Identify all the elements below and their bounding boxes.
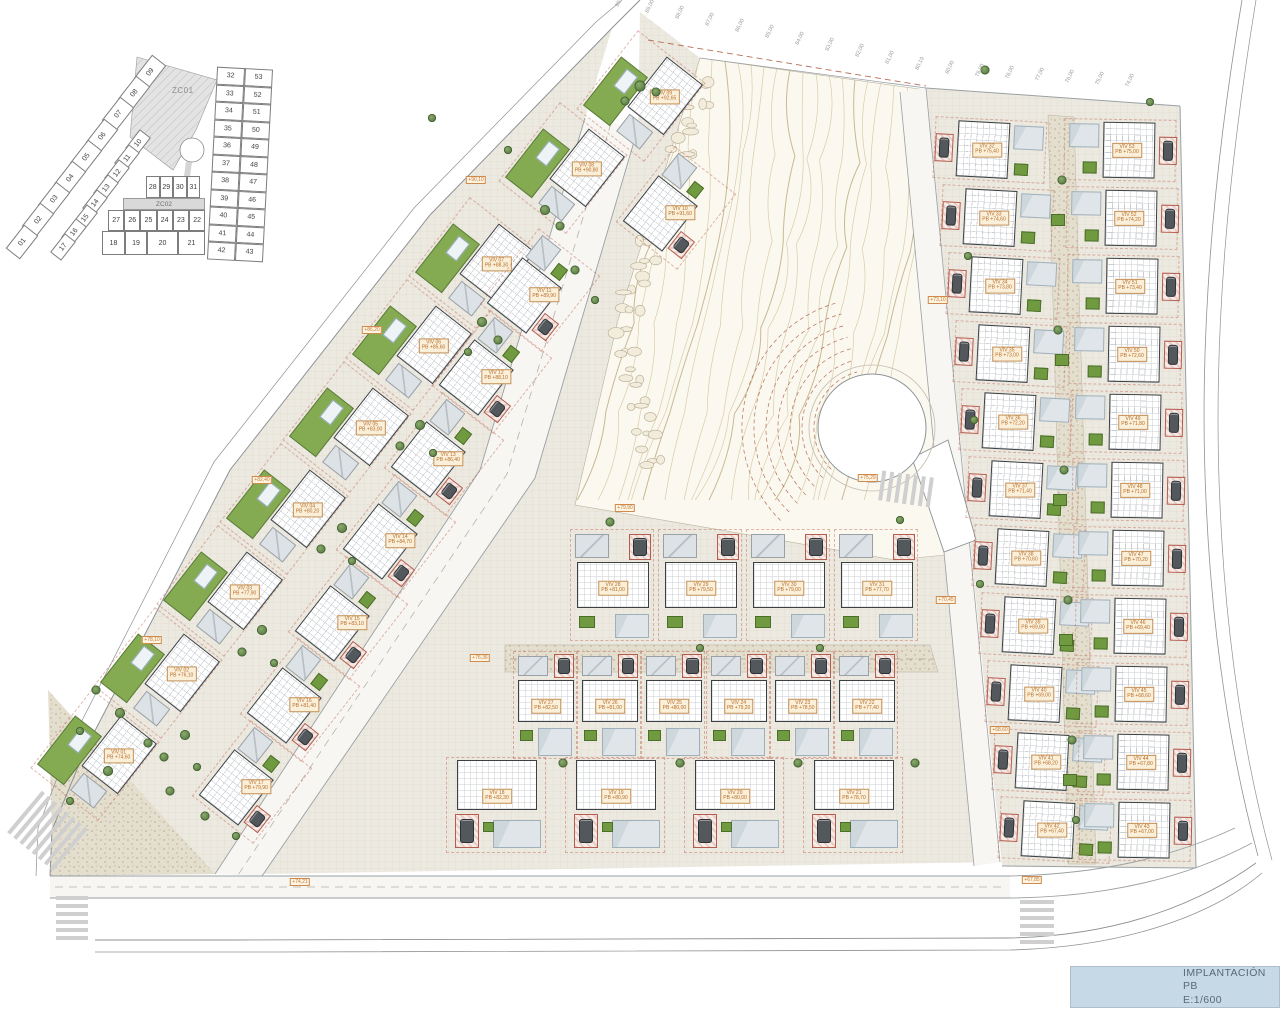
villa-planter [1096, 773, 1110, 785]
villa-pool [493, 820, 541, 848]
villa-planter [1014, 163, 1029, 176]
villa-label: VIV 24PB +79,20 [724, 699, 754, 714]
tree-icon [1146, 98, 1154, 106]
villa-planter [713, 730, 726, 741]
key-plan-plot-cell: 48 [240, 156, 269, 175]
villa-floor-level: PB +71,00 [1123, 490, 1147, 496]
tree-icon [1072, 816, 1080, 824]
villa-label: VIV 03PB +77,90 [230, 584, 260, 599]
villa-unit: VIV 48PB +71,00 [1071, 458, 1184, 522]
villa-planter [483, 822, 494, 832]
villa-label: VIV 44PB +67,80 [1126, 755, 1156, 770]
tree-icon [794, 759, 803, 768]
villa-planter [1098, 841, 1112, 853]
tree-icon [494, 336, 503, 345]
villa-floor-level: PB +80,00 [723, 796, 747, 802]
villa-label: VIV 17PB +79,90 [241, 779, 271, 794]
villa-unit: VIV 28PB +81,00 [570, 529, 654, 641]
parked-car-icon [717, 534, 739, 560]
tree-icon [348, 557, 356, 565]
key-plan-plot-cell: 42 [207, 241, 236, 260]
villa-floor-level: PB +69,40 [1126, 626, 1150, 632]
villa-unit: VIV 43PB +67,00 [1078, 798, 1191, 862]
parked-car-icon [618, 654, 638, 678]
villa-floor-level: PB +70,20 [1124, 558, 1148, 564]
spine-planter [1053, 494, 1067, 506]
villa-label: VIV 33PB +74,60 [979, 211, 1009, 226]
villa-label: VIV 53PB +75,00 [1112, 143, 1142, 158]
villa-label: VIV 28PB +81,00 [598, 581, 628, 596]
villa-unit: VIV 49PB +71,80 [1069, 390, 1182, 454]
villa-floor-level: PB +73,80 [988, 286, 1012, 292]
parked-car-icon [1174, 817, 1192, 845]
parked-car-icon [1159, 137, 1177, 165]
villa-label: VIV 20PB +80,00 [720, 789, 750, 804]
parked-car-icon [1168, 545, 1186, 573]
parked-car-icon [967, 473, 986, 502]
villa-label: VIV 49PB +71,80 [1118, 415, 1148, 430]
villa-label: VIV 23PB +78,50 [788, 699, 818, 714]
tree-icon [415, 420, 425, 430]
tree-icon [1060, 466, 1069, 475]
villa-unit: VIV 25PB +80,00 [641, 651, 705, 759]
villa-label: VIV 48PB +71,00 [1120, 483, 1150, 498]
villa-pool [795, 728, 829, 756]
villa-label: VIV 25PB +80,00 [660, 699, 690, 714]
key-plan-plot-cell: 21 [178, 231, 205, 255]
villa-planter [1087, 365, 1101, 377]
parked-car-icon [1160, 205, 1178, 233]
villa-planter [602, 822, 613, 832]
villa-pool [1084, 803, 1114, 828]
tree-icon [232, 832, 240, 840]
villa-unit: VIV 26PB +81,00 [577, 651, 641, 759]
villa-label: VIV 18PB +82,30 [482, 789, 512, 804]
villa-label: VIV 52PB +74,20 [1114, 211, 1144, 226]
tree-icon [696, 644, 704, 652]
villa-planter [1092, 569, 1106, 581]
key-plan-plot-cell: 18 [102, 231, 125, 255]
villa-planter [777, 730, 790, 741]
villa-floor-level: PB +84,70 [388, 540, 412, 546]
parked-car-icon [455, 814, 479, 848]
tree-icon [193, 763, 201, 771]
road-elevation-marker: +90,10 [466, 176, 486, 184]
villa-floor-level: PB +88,30 [485, 264, 509, 270]
villa-pool [1072, 259, 1102, 284]
villa-unit: VIV 44PB +67,80 [1077, 730, 1190, 794]
parked-car-icon [693, 814, 717, 848]
villa-floor-level: PB +72,20 [1001, 422, 1025, 428]
villa-roof [646, 656, 676, 676]
key-plan-plot-cell: 39 [210, 189, 239, 208]
villa-pool [1077, 463, 1107, 488]
parked-car-icon [554, 654, 574, 678]
villa-label: VIV 31PB +77,70 [862, 581, 892, 596]
villa-floor-level: PB +72,60 [1120, 354, 1144, 360]
road-elevation-marker: +76,36 [470, 654, 490, 662]
villa-floor-level: PB +77,90 [233, 592, 257, 598]
villa-floor-level: PB +76,10 [170, 674, 194, 680]
tree-icon [166, 787, 175, 796]
villa-floor-level: PB +92,65 [653, 97, 677, 103]
villa-label: VIV 51PB +73,40 [1115, 279, 1145, 294]
key-plan-plot-cell: 44 [236, 225, 265, 244]
tree-icon [911, 759, 920, 768]
villa-label: VIV 15PB +83,10 [337, 615, 367, 630]
villa-planter [1020, 231, 1035, 244]
villa-unit: VIV 18PB +82,30 [446, 757, 546, 853]
villa-label: VIV 36PB +72,20 [998, 415, 1028, 430]
villa-floor-level: PB +75,40 [975, 150, 999, 156]
parked-car-icon [1166, 477, 1184, 505]
villa-floor-level: PB +81,00 [598, 706, 622, 712]
villa-pool [1081, 667, 1111, 692]
villa-floor-level: PB +77,40 [855, 706, 879, 712]
villa-unit: VIV 22PB +77,40 [834, 651, 898, 759]
villa-planter [550, 263, 568, 281]
villa-roof [751, 534, 785, 558]
villa-pool [602, 728, 636, 756]
tree-icon [652, 88, 661, 97]
villa-floor-level: PB +74,60 [982, 218, 1006, 224]
road-elevation-marker: +73,10 [928, 296, 948, 304]
spine-planter [1063, 774, 1077, 786]
key-plan-plot-cell: 52 [243, 86, 272, 105]
villa-planter [721, 822, 732, 832]
villa-label: VIV 29PB +79,50 [686, 581, 716, 596]
parked-car-icon [812, 814, 836, 848]
villa-label: VIV 06PB +85,60 [419, 338, 449, 353]
villa-roof [518, 656, 548, 676]
villa-floor-level: PB +91,60 [668, 212, 692, 218]
parked-car-icon [934, 133, 953, 162]
villa-floor-level: PB +69,00 [1027, 694, 1051, 700]
villa-planter [310, 673, 328, 691]
key-plan-plot-cell: 34 [214, 102, 243, 121]
parked-car-icon [1169, 613, 1187, 641]
key-plan-plot-cell: 19 [125, 231, 147, 255]
crosswalk [56, 896, 88, 940]
villa-planter [1086, 297, 1100, 309]
tree-icon [1068, 736, 1077, 745]
key-plan-plot-cell: 23 [173, 210, 189, 231]
villa-pool [703, 614, 737, 638]
villa-unit: VIV 34PB +73,80 [945, 252, 1060, 320]
villa-unit: VIV 50PB +72,60 [1068, 322, 1181, 386]
villa-planter [1040, 435, 1055, 448]
tree-icon [559, 759, 568, 768]
tree-icon [396, 442, 405, 451]
villa-planter [686, 181, 704, 199]
key-plan-plot-cell: 49 [240, 138, 269, 157]
villa-label: VIV 11PB +89,90 [529, 287, 559, 302]
parked-car-icon [805, 534, 827, 560]
title-block-name: IMPLANTACIÓN PB [1183, 967, 1279, 994]
road-elevation-marker: +79,90 [615, 504, 635, 512]
parked-car-icon [941, 201, 960, 230]
spine-planter [1051, 214, 1065, 226]
villa-label: VIV 50PB +72,60 [1117, 347, 1147, 362]
villa-label: VIV 43PB +67,00 [1127, 823, 1157, 838]
villa-planter [502, 345, 520, 363]
villa-planter [520, 730, 533, 741]
villa-label: VIV 41PB +68,20 [1031, 755, 1061, 770]
villa-pool [1013, 125, 1044, 151]
villa-roof [775, 656, 805, 676]
key-plan-plot-cell: 38 [211, 172, 240, 191]
tree-icon [92, 686, 101, 695]
tree-icon [257, 625, 267, 635]
villa-floor-level: PB +90,80 [575, 169, 599, 175]
villa-label: VIV 08PB +90,80 [572, 161, 602, 176]
villa-roof [663, 534, 697, 558]
parked-car-icon [999, 813, 1018, 842]
villa-unit: VIV 24PB +79,20 [706, 651, 770, 759]
key-plan-plot-cell: 33 [215, 84, 244, 103]
villa-unit: VIV 38PB +70,60 [971, 524, 1086, 592]
parked-car-icon [1165, 409, 1183, 437]
key-plan-zone2-label: ZC02 [156, 201, 172, 208]
villa-unit: VIV 29PB +79,50 [658, 529, 742, 641]
villa-pool [1039, 397, 1070, 423]
tree-icon [103, 766, 113, 776]
tree-icon [1064, 596, 1073, 605]
villa-label: VIV 21PB +78,70 [839, 789, 869, 804]
villa-label: VIV 16PB +81,40 [289, 697, 319, 712]
villa-label: VIV 13PB +86,40 [433, 451, 463, 466]
villa-floor-level: PB +80,00 [663, 706, 687, 712]
parked-car-icon [893, 534, 915, 560]
tree-icon [238, 648, 247, 657]
key-plan-plot-cell: 53 [244, 68, 273, 87]
villa-unit: VIV 51PB +73,40 [1066, 254, 1179, 318]
villa-floor-level: PB +80,90 [604, 796, 628, 802]
tree-icon [1058, 176, 1067, 185]
villa-unit: VIV 23PB +78,50 [770, 651, 834, 759]
road-elevation-marker: +70,45 [936, 596, 956, 604]
parked-car-icon [682, 654, 702, 678]
villa-floor-level: PB +78,70 [842, 796, 866, 802]
villa-floor-level: PB +73,40 [1118, 286, 1142, 292]
villa-floor-level: PB +74,60 [107, 756, 131, 762]
villa-floor-level: PB +67,00 [1130, 830, 1154, 836]
villa-label: VIV 27PB +82,50 [531, 699, 561, 714]
villa-roof [839, 534, 873, 558]
villa-pool [850, 820, 898, 848]
key-plan-zone2-band: ZC02 [123, 198, 205, 210]
parked-car-icon [875, 654, 895, 678]
tree-icon [144, 739, 153, 748]
villa-pool [791, 614, 825, 638]
key-plan-zone1-label: ZC01 [172, 86, 194, 95]
key-plan-right-block: 3253335234513550364937483847394640454144… [207, 67, 273, 263]
title-block-scale: E:1/600 [1183, 994, 1279, 1008]
key-plan-plot-cell: 47 [239, 173, 268, 192]
parked-car-icon [986, 677, 1005, 706]
tree-icon [816, 644, 824, 652]
villa-floor-level: PB +69,80 [1021, 626, 1045, 632]
villa-unit: VIV 27PB +82,50 [513, 651, 577, 759]
villa-floor-level: PB +74,20 [1117, 218, 1141, 224]
villa-floor-level: PB +78,50 [791, 706, 815, 712]
parked-car-icon [1163, 341, 1181, 369]
villa-roof [575, 534, 609, 558]
villa-unit: VIV 31PB +77,70 [834, 529, 918, 641]
villa-unit: VIV 45PB +68,60 [1075, 662, 1188, 726]
villa-floor-level: PB +67,80 [1129, 762, 1153, 768]
villa-label: VIV 10PB +91,60 [665, 205, 695, 220]
key-plan-plot-cell: 45 [237, 208, 266, 227]
spine-planter [1055, 354, 1069, 366]
villa-label: VIV 46PB +69,40 [1123, 619, 1153, 634]
road-elevation-marker: +78,10 [142, 636, 162, 644]
road-elevation-marker: +75,29 [858, 474, 878, 482]
villa-unit: VIV 21PB +78,70 [803, 757, 903, 853]
villa-roof [839, 656, 869, 676]
villa-floor-level: PB +88,10 [484, 376, 508, 382]
villa-pool [1075, 395, 1105, 420]
tree-icon [571, 266, 580, 275]
villa-pool [1080, 599, 1110, 624]
key-plan-plot-cell: 50 [241, 121, 270, 140]
tree-icon [976, 580, 984, 588]
villa-label: VIV 35PB +73,00 [992, 347, 1022, 362]
villa-floor-level: PB +82,30 [485, 796, 509, 802]
villa-floor-level: PB +79,00 [777, 588, 801, 594]
villa-pool [1078, 531, 1108, 556]
key-plan-plot-cell: 36 [213, 137, 242, 156]
villa-label: VIV 26PB +81,00 [595, 699, 625, 714]
tree-icon [429, 449, 437, 457]
parked-car-icon [954, 337, 973, 366]
key-plan-plot-cell: 32 [216, 67, 245, 86]
villa-planter [1027, 299, 1042, 312]
villa-floor-level: PB +73,00 [995, 354, 1019, 360]
villa-pool [666, 728, 700, 756]
villa-floor-level: PB +81,40 [292, 704, 316, 710]
villa-planter [755, 616, 771, 628]
tree-icon [317, 545, 326, 554]
villa-pool [1069, 123, 1099, 148]
title-block: IMPLANTACIÓN PB E:1/600 [1070, 966, 1280, 1008]
villa-planter [1084, 229, 1098, 241]
villa-floor-level: PB +86,40 [436, 458, 460, 464]
key-plan: ZC01 ZC02 090807060504030201101112131415… [22, 52, 284, 270]
road-elevation-marker: +68,60 [990, 726, 1010, 734]
villa-label: VIV 14PB +84,70 [385, 533, 415, 548]
villa-label: VIV 05PB +83,00 [356, 420, 386, 435]
villa-unit: VIV 53PB +75,00 [1063, 118, 1176, 182]
villa-planter [1053, 571, 1068, 584]
villa-label: VIV 47PB +70,20 [1121, 551, 1151, 566]
villa-planter [1083, 161, 1097, 173]
parked-car-icon [947, 269, 966, 298]
villa-label: VIV 04PB +80,20 [293, 502, 323, 517]
villa-pool [615, 614, 649, 638]
villa-floor-level: PB +71,80 [1121, 422, 1145, 428]
tree-icon [180, 730, 190, 740]
villa-floor-level: PB +79,50 [689, 588, 713, 594]
villa-floor-level: PB +77,70 [865, 588, 889, 594]
villa-unit: VIV 19PB +80,90 [565, 757, 665, 853]
tree-icon [270, 659, 278, 667]
villa-planter [1090, 501, 1104, 513]
villa-pool [859, 728, 893, 756]
villa-floor-level: PB +83,00 [359, 428, 383, 434]
parked-car-icon [980, 609, 999, 638]
tree-icon [66, 797, 74, 805]
key-plan-plot-cell: 24 [157, 210, 173, 231]
villa-floor-level: PB +79,20 [727, 706, 751, 712]
parked-car-icon [574, 814, 598, 848]
villa-unit: VIV 35PB +73,00 [952, 320, 1067, 388]
tree-icon [477, 317, 487, 327]
tree-icon [676, 759, 685, 768]
spine-planter [1059, 634, 1073, 646]
tree-icon [1054, 326, 1063, 335]
road-elevation-marker: +74,21 [290, 878, 310, 886]
villa-pool [1020, 193, 1051, 219]
villa-label: VIV 32PB +75,40 [972, 143, 1002, 158]
villa-label: VIV 34PB +73,80 [985, 279, 1015, 294]
key-plan-plot-cell: 51 [242, 103, 271, 122]
villa-floor-level: PB +67,40 [1040, 830, 1064, 836]
villa-planter [843, 616, 859, 628]
villa-pool [1026, 261, 1057, 287]
key-plan-plot-cell: 28 [146, 176, 160, 198]
villa-unit: VIV 47PB +70,20 [1072, 526, 1185, 590]
tree-icon [964, 252, 972, 260]
tree-icon [428, 114, 436, 122]
tree-icon [621, 97, 630, 106]
parked-car-icon [973, 541, 992, 570]
villa-label: VIV 22PB +77,40 [852, 699, 882, 714]
tree-icon [556, 222, 565, 231]
villa-planter [648, 730, 661, 741]
key-plan-plot-cell: 27 [108, 210, 124, 231]
villa-unit: VIV 52PB +74,20 [1065, 186, 1178, 250]
villa-label: VIV 40PB +69,00 [1024, 687, 1054, 702]
villa-unit: VIV 33PB +74,60 [939, 184, 1054, 252]
tree-icon [201, 812, 210, 821]
tree-icon [337, 523, 347, 533]
villa-label: VIV 38PB +70,60 [1011, 551, 1041, 566]
tree-icon [76, 727, 84, 735]
villa-planter [1093, 637, 1107, 649]
villa-pool [879, 614, 913, 638]
villa-label: VIV 30PB +79,00 [774, 581, 804, 596]
tree-icon [635, 81, 646, 92]
villa-unit: VIV 46PB +69,40 [1074, 594, 1187, 658]
key-plan-plot-cell: 41 [208, 224, 237, 243]
villa-planter [579, 616, 595, 628]
parked-car-icon [629, 534, 651, 560]
villa-floor-level: PB +70,60 [1014, 558, 1038, 564]
villa-label: VIV 01PB +74,60 [104, 748, 134, 763]
villa-planter [841, 730, 854, 741]
tree-icon [504, 146, 512, 154]
villa-planter [584, 730, 597, 741]
key-plan-plot-cell: 37 [212, 154, 241, 173]
parked-car-icon [1171, 681, 1189, 709]
parked-car-icon [811, 654, 831, 678]
key-plan-plot-cell: 22 [189, 210, 205, 231]
villa-floor-level: PB +80,20 [296, 510, 320, 516]
tree-icon [160, 753, 169, 762]
parked-car-icon [993, 745, 1012, 774]
tree-icon [591, 296, 599, 304]
